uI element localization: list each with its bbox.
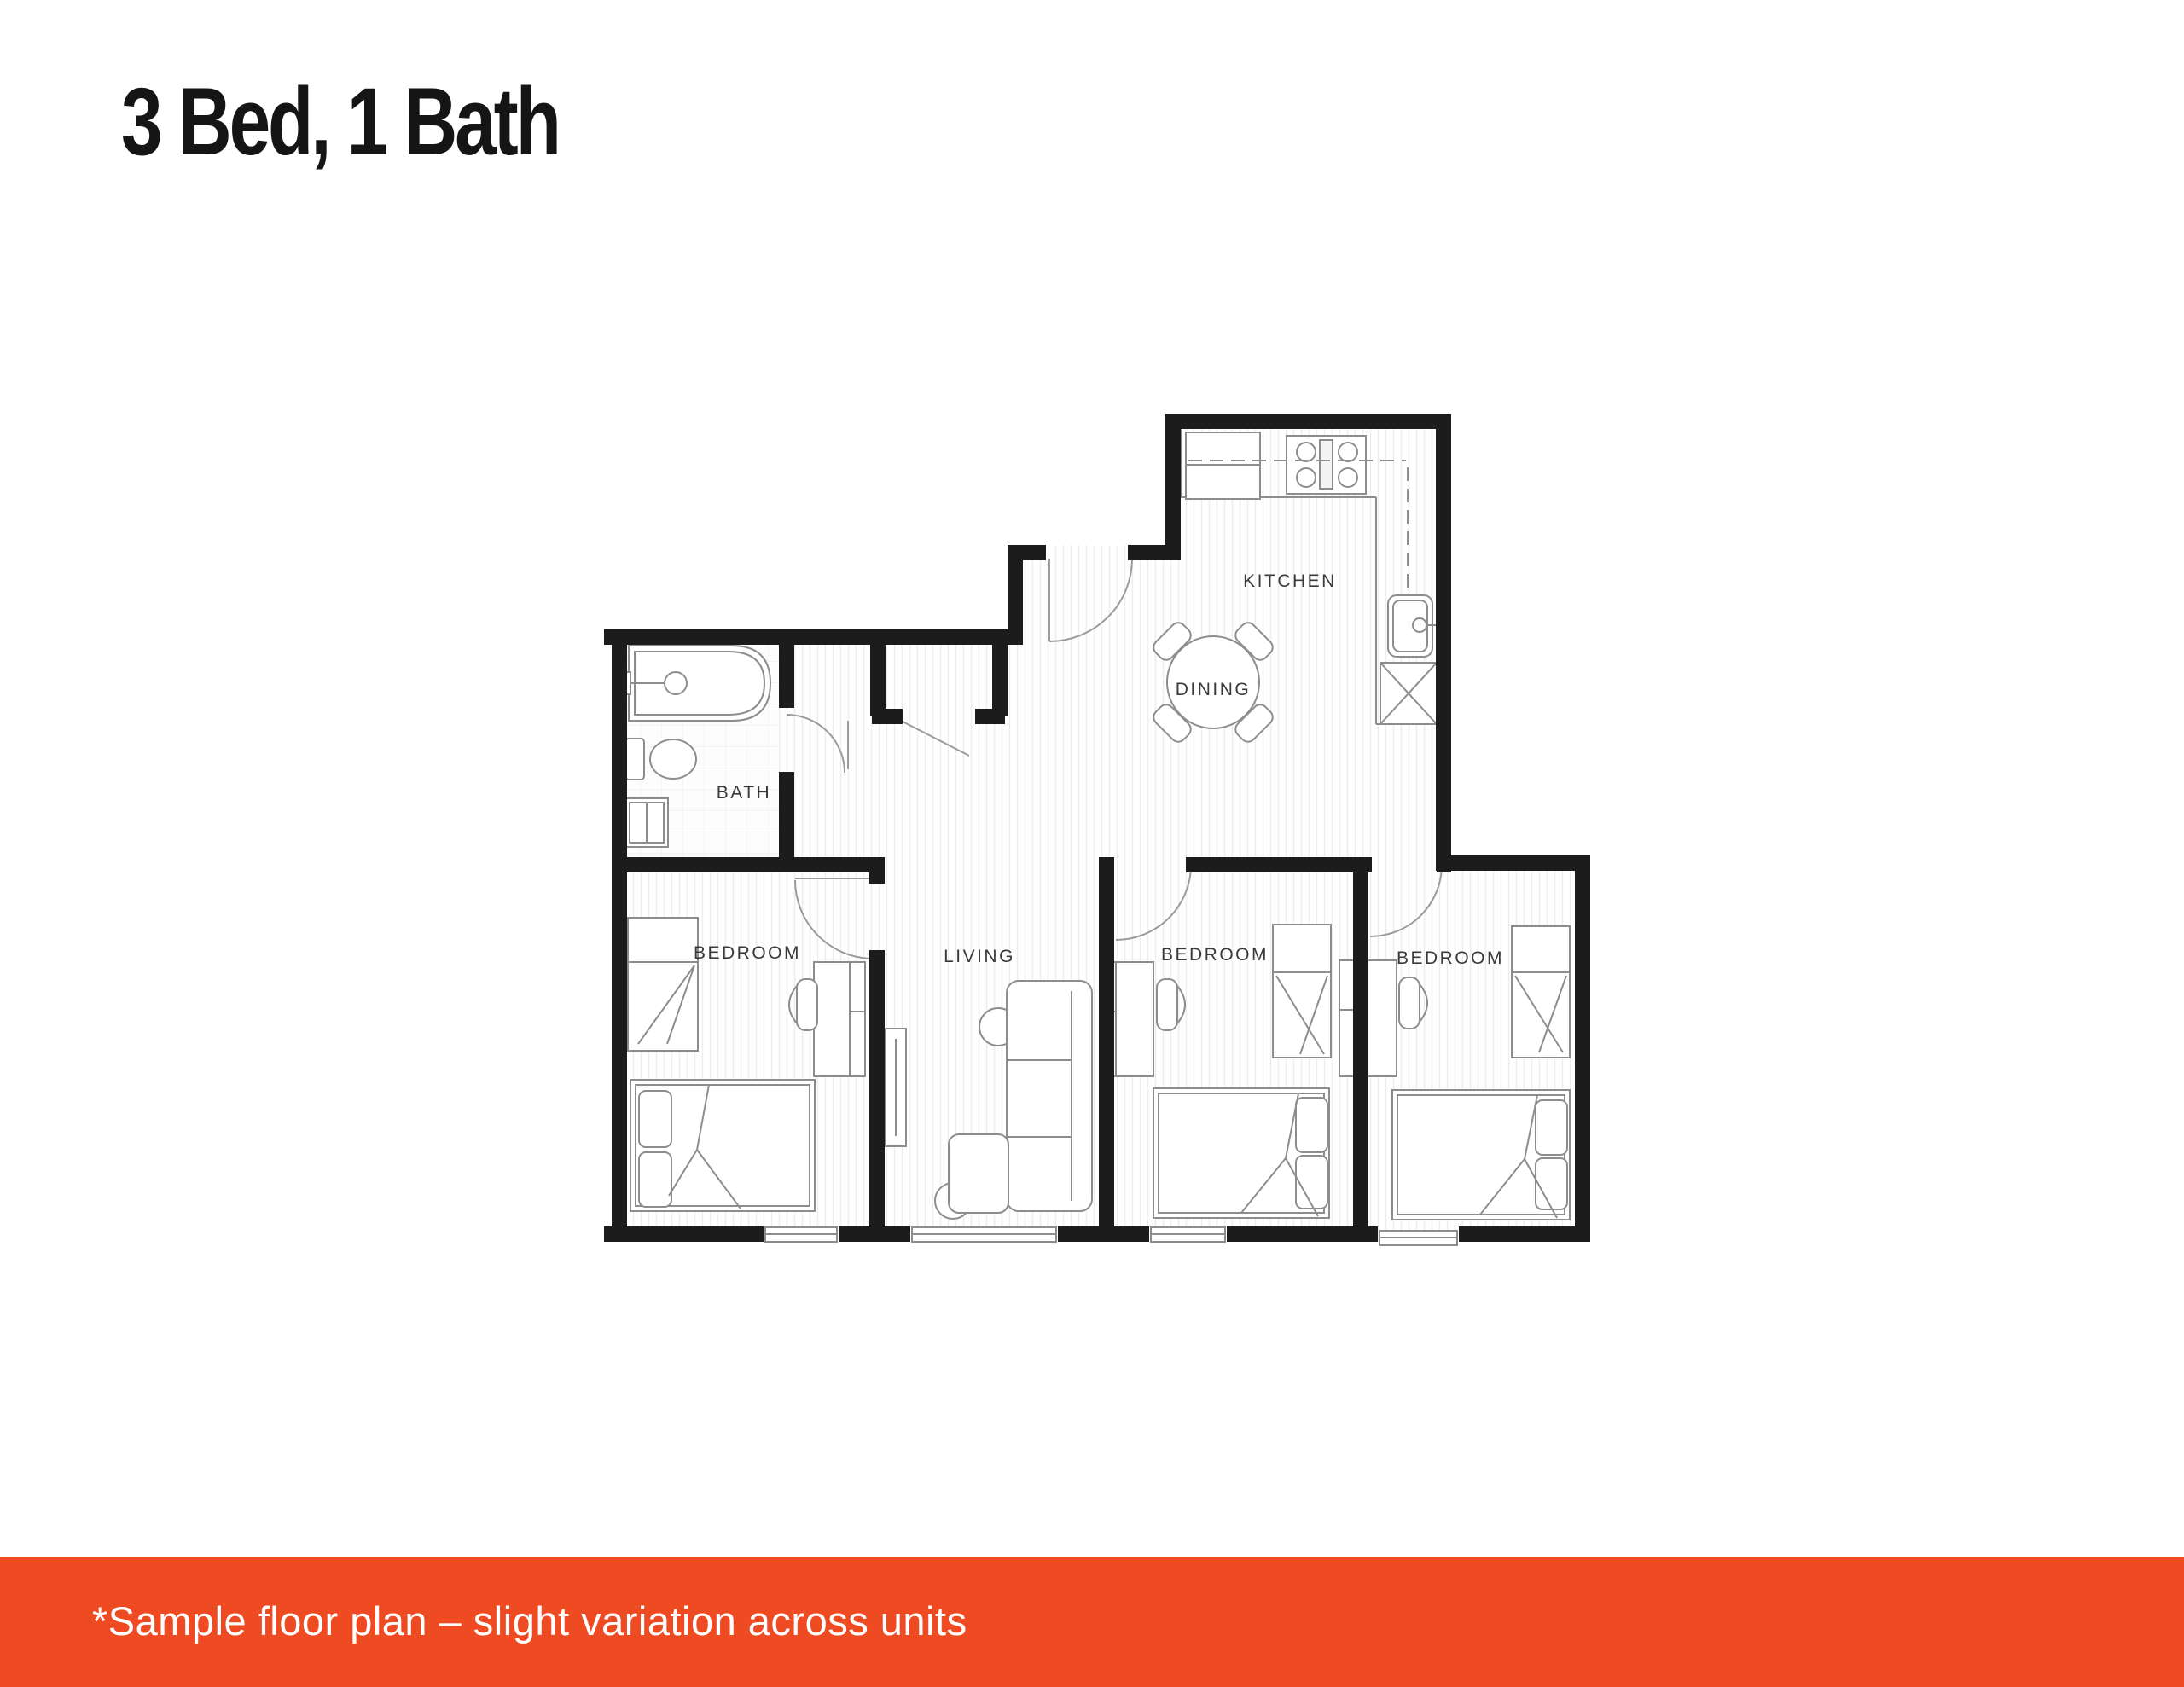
footer-note: *Sample floor plan – slight variation ac… [92,1597,967,1644]
page-title: 3 Bed, 1 Bath [121,67,559,177]
room-label-kitchen: KITCHEN [1243,571,1337,591]
room-label-bedroom-middle: BEDROOM [1161,945,1269,965]
wardrobe-icon [628,918,698,1051]
room-label-dining: DINING [1176,680,1252,699]
room-label-bedroom-right: BEDROOM [1397,948,1504,968]
bed-icon [1153,1088,1329,1218]
bathtub-icon [623,646,770,721]
window-icon [1380,1231,1457,1245]
slide: 3 Bed, 1 Bath [0,0,2184,1687]
footer-bar: *Sample floor plan – slight variation ac… [0,1557,2184,1687]
wardrobe-icon [1512,926,1570,1058]
toilet-icon [625,739,696,780]
fridge-icon [1186,432,1260,499]
floor-plan: KITCHEN DINING BATH BEDROOM LIVING BEDRO… [563,392,1638,1296]
window-icon [912,1227,1056,1242]
room-label-living: LIVING [944,947,1015,966]
bed-icon [1392,1090,1570,1220]
room-label-bedroom-left: BEDROOM [694,943,801,963]
wardrobe-icon [1273,925,1331,1058]
stove-icon [1287,436,1366,494]
vanity-icon [625,798,668,847]
dishwasher-icon [1380,663,1437,724]
desk-icon [814,962,865,1076]
window-icon [1151,1227,1225,1242]
room-label-bath: BATH [717,783,771,803]
bed-icon [630,1080,815,1211]
window-icon [765,1227,837,1242]
tv-console-icon [886,1029,906,1146]
